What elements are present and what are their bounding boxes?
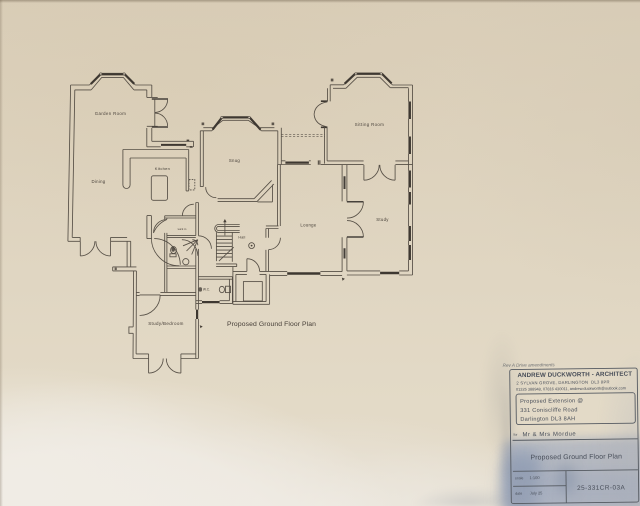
svg-text:date: date — [515, 492, 522, 496]
svg-text:W.C.: W.C. — [203, 288, 210, 292]
svg-text:Garden Room: Garden Room — [95, 111, 126, 116]
svg-text:Darlington DL3 8AH: Darlington DL3 8AH — [520, 416, 575, 423]
svg-text:wa'k in: wa'k in — [178, 227, 187, 231]
svg-text:Dining: Dining — [92, 179, 106, 184]
svg-text:Proposed Ground Floor Plan: Proposed Ground Floor Plan — [227, 321, 316, 328]
svg-text:Snug: Snug — [229, 158, 241, 163]
svg-text:for: for — [513, 433, 518, 437]
svg-text:331 Coniscliffe Road: 331 Coniscliffe Road — [520, 407, 578, 414]
svg-text:Sitting Room: Sitting Room — [355, 122, 384, 127]
svg-text:Proposed Ground Floor Plan: Proposed Ground Floor Plan — [530, 453, 622, 461]
svg-text:1:100: 1:100 — [529, 475, 540, 480]
svg-text:Study: Study — [376, 217, 389, 222]
svg-text:Study/Bedroom: Study/Bedroom — [148, 321, 184, 326]
svg-text:Rev A Drive amendments: Rev A Drive amendments — [503, 362, 556, 368]
svg-text:scale: scale — [515, 476, 523, 480]
svg-text:ANDREW DUCKWORTH - ARCHITECT: ANDREW DUCKWORTH - ARCHITECT — [517, 371, 632, 379]
svg-text:01325 388948, 07816 430011, an: 01325 388948, 07816 430011, andrew.duckw… — [516, 385, 626, 391]
svg-text:Lounge: Lounge — [300, 222, 316, 227]
svg-text:25-331CR-03A: 25-331CR-03A — [577, 484, 625, 492]
svg-text:Kitchen: Kitchen — [155, 166, 170, 171]
svg-text:Hall: Hall — [238, 235, 245, 239]
svg-text:Proposed Extension @: Proposed Extension @ — [520, 398, 583, 405]
svg-text:July 25: July 25 — [530, 490, 544, 495]
svg-text:2 SYLVAN GROVE, DARLINGTON DL: 2 SYLVAN GROVE, DARLINGTON DL3 8PR — [516, 379, 610, 385]
svg-text:Mr & Mrs Mordue: Mr & Mrs Mordue — [522, 432, 576, 439]
